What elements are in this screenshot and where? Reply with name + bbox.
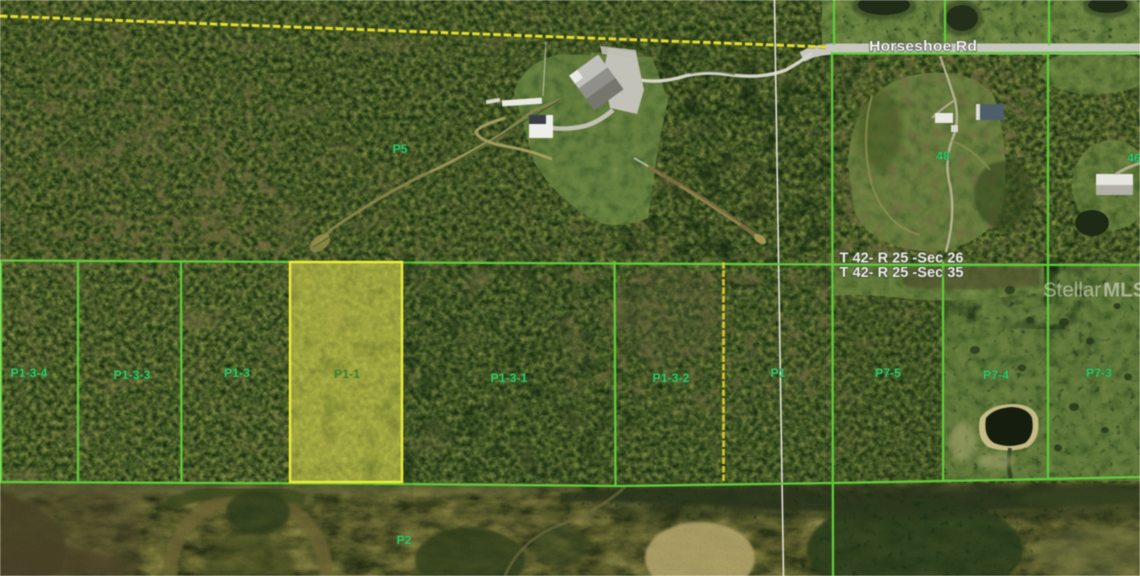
- svg-text:P1-3-1: P1-3-1: [491, 371, 528, 385]
- svg-text:Horseshoe Rd: Horseshoe Rd: [869, 39, 977, 55]
- svg-text:P7-5: P7-5: [875, 366, 901, 380]
- svg-text:T 42- R 25 -Sec 35: T 42- R 25 -Sec 35: [840, 264, 965, 281]
- svg-text:P5: P5: [392, 142, 407, 156]
- svg-text:P2: P2: [396, 533, 411, 547]
- svg-text:P1-3-3: P1-3-3: [114, 368, 151, 382]
- svg-text:P1-3: P1-3: [224, 366, 250, 380]
- svg-text:P7-3: P7-3: [1086, 366, 1112, 380]
- svg-text:StellarMLS: StellarMLS: [1043, 279, 1140, 302]
- svg-text:P1-3-4: P1-3-4: [11, 366, 48, 380]
- svg-text:P1: P1: [770, 366, 785, 380]
- svg-text:46: 46: [1127, 151, 1140, 165]
- svg-text:48: 48: [936, 149, 950, 163]
- svg-text:P1-1: P1-1: [334, 367, 360, 381]
- svg-text:P7-4: P7-4: [983, 368, 1009, 382]
- svg-text:P1-3-2: P1-3-2: [653, 371, 690, 385]
